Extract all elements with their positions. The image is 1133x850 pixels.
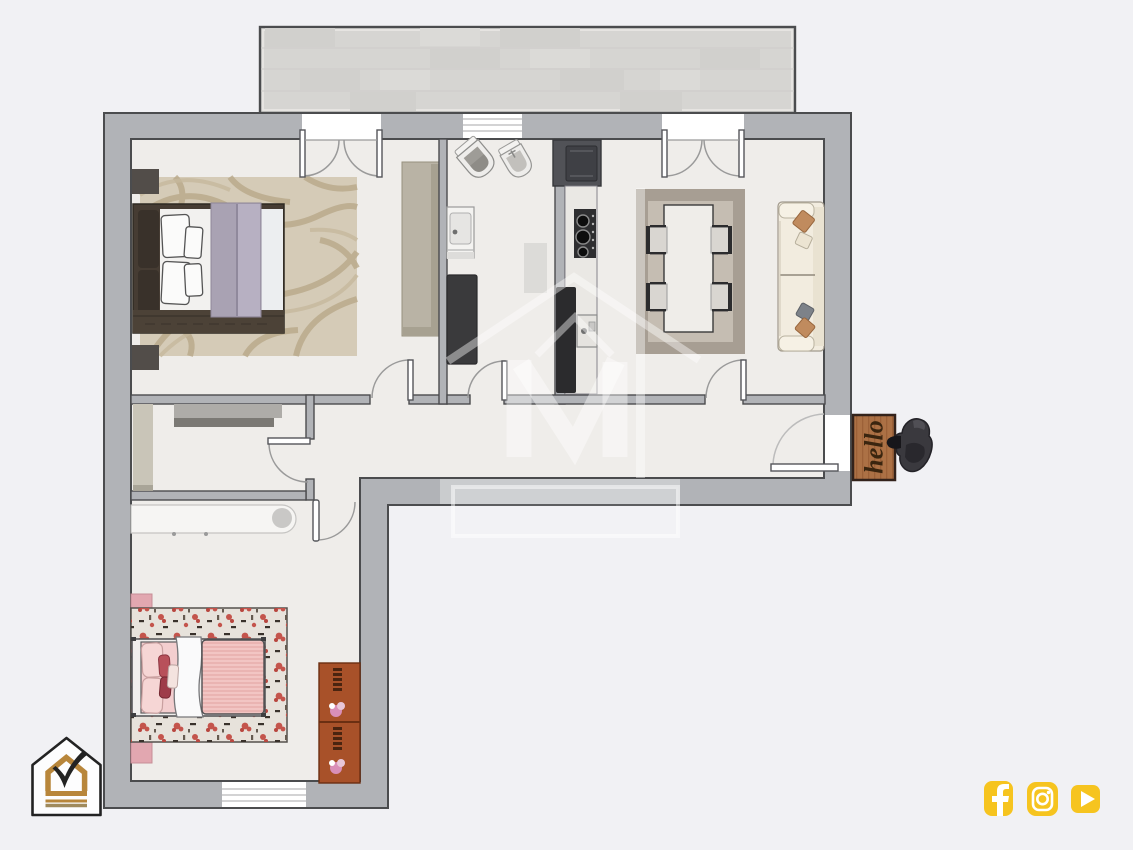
svg-text:hello: hello <box>860 420 889 473</box>
